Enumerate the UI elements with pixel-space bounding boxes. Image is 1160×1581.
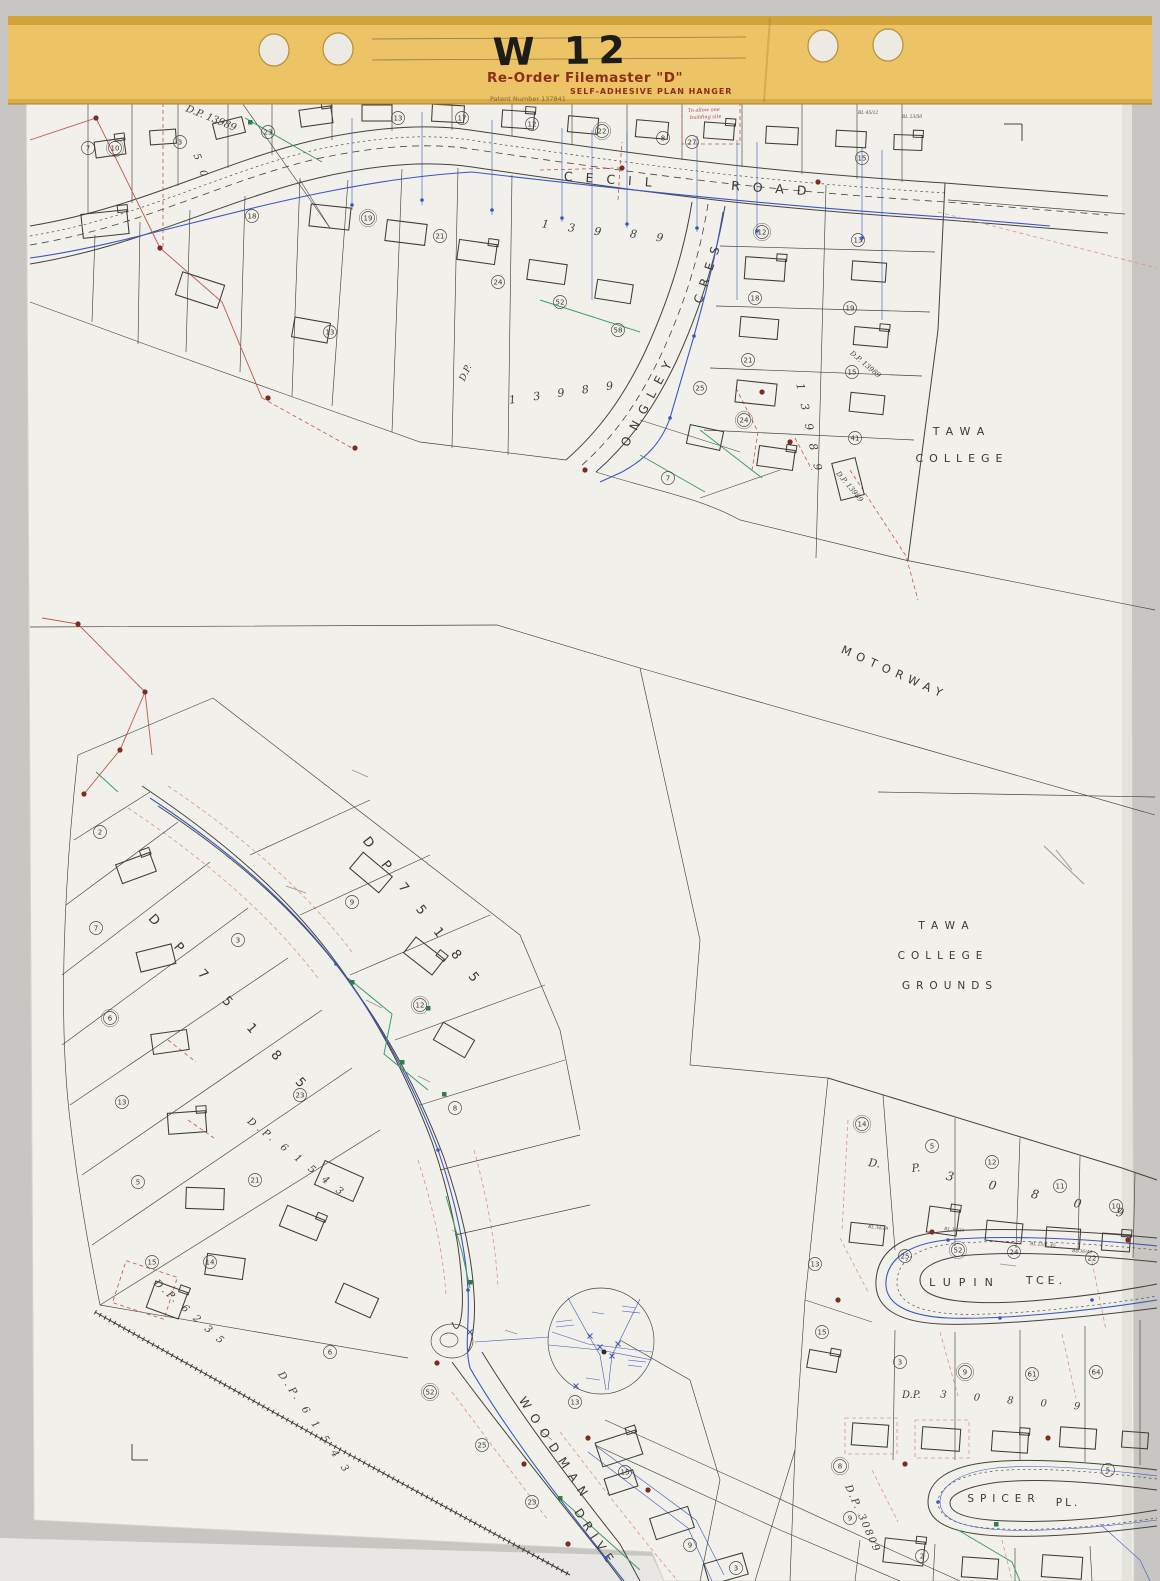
sheet-code: W 12 (492, 28, 633, 74)
survey-node-dot (619, 165, 624, 170)
survey-node-dot (142, 689, 147, 694)
lot-number: 52 (954, 1246, 963, 1254)
watermain-node (936, 1500, 940, 1504)
lot-number: 13 (394, 114, 403, 122)
lot-number: 3 (898, 1358, 902, 1366)
plan-digit: D. (867, 1156, 882, 1171)
area-label-grounds: GROUNDS (902, 980, 998, 992)
survey-node-dot (1045, 1435, 1050, 1440)
lot-number: 23 (528, 1498, 537, 1506)
lot-number: 15 (848, 368, 857, 376)
drainage-node (558, 1496, 563, 1501)
drainage-node (994, 1522, 999, 1527)
drainage-node (248, 120, 253, 125)
lot-number: 9 (963, 1368, 967, 1376)
survey-node-dot (565, 1541, 570, 1546)
lot-number: 27 (688, 138, 697, 146)
lot-number: 25 (696, 384, 705, 392)
lot-number: 24 (494, 278, 503, 286)
lot-number: 25 (901, 1252, 910, 1260)
lot-number: 52 (556, 298, 565, 306)
area-label-college: COLLEGE (915, 452, 1008, 465)
survey-node-dot (75, 621, 80, 626)
watermain-node (420, 198, 424, 202)
lot-number: 14 (858, 1120, 867, 1128)
lot-number: 24 (740, 416, 749, 424)
watermain-node (490, 208, 494, 212)
watermain-node (334, 962, 338, 966)
watermain-node (860, 236, 864, 240)
drainage-node (442, 1092, 447, 1097)
area-label-tawa: TAWA (932, 425, 992, 438)
survey-node-dot (582, 467, 587, 472)
watermain-node (560, 216, 564, 220)
area-label-tawa-grounds: TAWA (917, 920, 975, 932)
house-ref: BL 45/12 (857, 111, 878, 116)
lot-number: 24 (1010, 1248, 1019, 1256)
lot-number: 19 (846, 304, 855, 312)
lot-number: 23 (264, 128, 273, 136)
survey-node-dot (521, 1461, 526, 1466)
survey-node-dot (902, 1461, 907, 1466)
survey-node-dot (645, 1487, 650, 1492)
survey-node-dot (1125, 1237, 1130, 1242)
watermain-node (625, 222, 629, 226)
lot-number: 8 (838, 1462, 842, 1470)
drainage-node (426, 1006, 431, 1011)
survey-node-dot (585, 1435, 590, 1440)
survey-node-dot (929, 1229, 934, 1234)
lot-number: 21 (251, 1176, 260, 1184)
survey-node-dot (787, 439, 792, 444)
lot-number: 10 (1112, 1202, 1121, 1210)
red-annotation: To allow one (688, 107, 720, 114)
lot-number: 6 (108, 1014, 113, 1022)
lot-number: 19 (364, 214, 373, 222)
lot-number: 3 (178, 138, 182, 146)
lot-number: 25 (478, 1441, 487, 1449)
drainage-node (400, 1060, 405, 1065)
lot-number: 13 (571, 1398, 580, 1406)
filemaster-hanger-strip: W 12 Re-Order Filemaster "D" SELF-ADHESI… (8, 16, 1152, 104)
plan-digit: P. (910, 1161, 921, 1175)
street-label-spicer: SPICER (967, 1493, 1040, 1505)
product-subtitle: SELF-ADHESIVE PLAN HANGER (570, 87, 732, 96)
lot-number: 22 (1088, 1254, 1097, 1262)
lot-number: 61 (1028, 1370, 1037, 1378)
house-ref: BL 23/50 (901, 115, 922, 120)
watermain-node (466, 1288, 470, 1292)
lot-number: 12 (528, 120, 537, 128)
lot-number: 7 (86, 144, 90, 152)
survey-node-dot (759, 389, 764, 394)
watermain-node (692, 334, 696, 338)
lot-number: 23 (296, 1091, 305, 1099)
lot-number: 13 (326, 328, 335, 336)
lot-number: 12 (988, 1158, 997, 1166)
lot-number: 12 (416, 1001, 425, 1009)
watermain-node (604, 1556, 608, 1560)
survey-node-dot (93, 115, 98, 120)
lot-number: 58 (614, 326, 623, 334)
lot-number: 18 (751, 294, 760, 302)
lot-number: 21 (744, 356, 753, 364)
plan-sheet (26, 86, 1134, 1581)
lot-number: 41 (851, 434, 860, 442)
survey-node-dot (265, 395, 270, 400)
plan-abbrev-mid: D.P. (901, 1390, 921, 1401)
watermain-node (946, 1238, 950, 1242)
lot-number: 9 (350, 898, 354, 906)
product-name: Re-Order Filemaster "D" (487, 70, 683, 86)
lot-number: 15 (818, 1328, 827, 1336)
lot-number: 3 (236, 936, 240, 944)
lot-number: 9 (848, 1514, 852, 1522)
lot-number: 52 (426, 1388, 435, 1396)
street-label-lupin-tce: TCE. (1025, 1274, 1066, 1287)
lot-number: 17 (458, 114, 467, 122)
lot-number: 15 (858, 154, 867, 162)
survey-node-dot (352, 445, 357, 450)
survey-node-dot (815, 179, 820, 184)
lot-number: 6 (328, 1348, 333, 1356)
watermain-node (755, 229, 759, 233)
lot-number: 7 (94, 924, 98, 932)
watermain-node (436, 1148, 440, 1152)
drainage-node (350, 980, 355, 985)
lot-number: 13 (811, 1260, 820, 1268)
area-label-college-grounds: COLLEGE (898, 950, 989, 962)
lot-number: 9 (688, 1541, 692, 1549)
patent-number: Patent Number 137841 (490, 95, 566, 103)
lot-number: 5 (930, 1142, 934, 1150)
survey-node-dot (157, 245, 162, 250)
lot-number: 18 (248, 212, 257, 220)
watermain-node (695, 226, 699, 230)
survey-node-dot (117, 747, 122, 752)
survey-node-dot (434, 1360, 439, 1365)
lot-number: 11 (1056, 1182, 1065, 1190)
lot-number: 3 (734, 1564, 738, 1572)
scanned-survey-plan: CECIL ROAD ONGLEY CRES TAWA COLLEGE D.P.… (0, 0, 1160, 1581)
watermain-node (668, 416, 672, 420)
lot-number: 12 (758, 228, 767, 236)
lot-number: 5 (1106, 1466, 1110, 1474)
lot-number: 8 (453, 1104, 457, 1112)
street-label-lupin: LUPIN (929, 1276, 1001, 1289)
street-label-spicer-pl: PL. (1056, 1497, 1081, 1509)
survey-node-dot (81, 791, 86, 796)
watermain-node (1090, 1298, 1094, 1302)
lot-number: 7 (666, 474, 670, 482)
lot-number: 15 (148, 1258, 157, 1266)
sheet-edge-shade (1122, 90, 1132, 1581)
lot-number: 5 (136, 1178, 140, 1186)
watermain-node (998, 1316, 1002, 1320)
lot-number: 21 (436, 232, 445, 240)
red-annotation: building site (690, 114, 722, 121)
watermain-node (350, 203, 354, 207)
drainage-node (468, 1280, 473, 1285)
survey-node-dot (835, 1297, 840, 1302)
lot-number: 10 (111, 144, 120, 152)
lot-number: 2 (98, 828, 102, 836)
lot-number: 13 (118, 1098, 127, 1106)
lot-number: 22 (598, 127, 607, 135)
lot-number: 64 (1092, 1368, 1101, 1376)
